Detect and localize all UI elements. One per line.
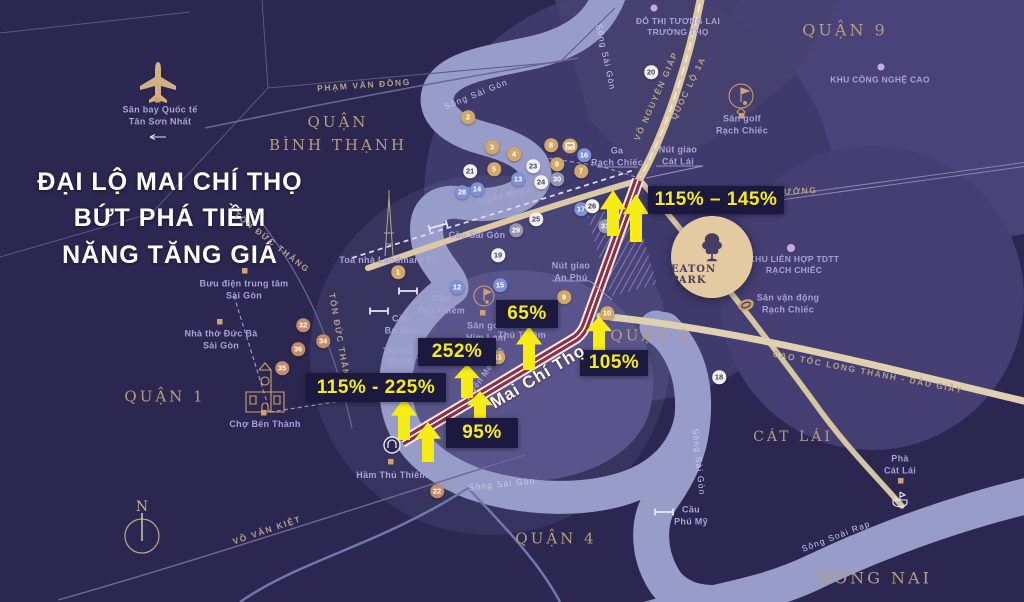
poi-marker: 25 xyxy=(529,212,543,226)
station-icon xyxy=(563,139,578,154)
place-label: Ga Rạch Chiếc xyxy=(591,145,643,168)
place-label: Sân vận động Rạch Chiếc xyxy=(757,292,820,315)
place-label: Cầu Phú Mỹ xyxy=(674,504,708,527)
place-label: Sân bay Quốc tế Tân Sơn Nhất xyxy=(122,104,197,127)
poi-marker: 32 xyxy=(296,318,310,332)
place-label: Hầm Thủ Thiêm xyxy=(356,470,427,482)
poi-marker: 19 xyxy=(491,248,505,262)
eaton-park-name: EATON PARK xyxy=(671,264,753,286)
tunnel-icon xyxy=(384,437,400,453)
poi-marker: 22 xyxy=(430,484,444,498)
page-title: ĐẠI LỘ MAI CHÍ THỌ BỨT PHÁ TIỀM NĂNG TĂN… xyxy=(30,164,310,273)
poi-marker: 3 xyxy=(485,140,499,154)
poi-marker: 8 xyxy=(544,138,558,152)
poi-marker: 5 xyxy=(487,162,501,176)
poi-marker: 13 xyxy=(511,172,525,186)
district-label: QUẬN 2 xyxy=(610,324,691,347)
place-label: KHU LIÊN HỢP TDTT RẠCH CHIẾC xyxy=(749,254,840,276)
district-label: QUẬN 9 xyxy=(802,19,887,44)
poi-marker: 16 xyxy=(577,148,591,162)
poi-marker: 28 xyxy=(455,185,469,199)
place-label: Cầu Thủ Thiêm xyxy=(417,293,465,316)
percent-badge: 95% xyxy=(446,418,518,448)
place-label: Cầu Sài Gòn xyxy=(449,230,506,242)
place-label: Toà nhà Landmark 81 xyxy=(339,255,437,267)
poi-marker: 29 xyxy=(509,223,523,237)
percent-badge: 115% - 225% xyxy=(306,373,446,402)
poi-marker: 23 xyxy=(526,159,540,173)
district-label: QUẬN 1 xyxy=(124,385,205,408)
percent-badge: 105% xyxy=(580,350,648,376)
percent-badge: 115% – 145% xyxy=(648,186,784,214)
district-label: CÁT LÁI xyxy=(753,427,833,449)
poi-marker: 35 xyxy=(275,361,289,375)
poi-marker: 15 xyxy=(493,278,507,292)
district-label: QUẬN 4 xyxy=(515,527,596,550)
poi-marker: 2 xyxy=(461,110,475,124)
place-label: Nút giao Cát Lái xyxy=(659,144,697,167)
place-label: Chợ Bến Thành xyxy=(229,419,300,431)
place-label: Cầu Ba Son xyxy=(385,313,418,336)
place-label: Phà Cát Lái xyxy=(884,453,916,476)
poi-marker: 26 xyxy=(585,199,599,213)
poi-marker: 30 xyxy=(550,172,564,186)
poi-marker: 9 xyxy=(557,290,571,304)
poi-marker: 1 xyxy=(391,265,405,279)
eaton-park-logo: EATON PARK xyxy=(671,216,753,298)
poi-marker: 18 xyxy=(712,370,726,384)
poi-marker: 21 xyxy=(463,164,477,178)
poi-marker: 14 xyxy=(470,182,484,196)
poi-marker: 6 xyxy=(550,157,564,171)
poi-marker: 24 xyxy=(534,175,548,189)
tree-icon xyxy=(695,229,729,263)
poi-marker: 7 xyxy=(574,164,588,178)
place-label: Nút giao An Phú xyxy=(552,260,590,283)
poi-marker: 34 xyxy=(316,334,330,348)
percent-badge: 252% xyxy=(418,338,496,366)
map-canvas: ĐẠI LỘ MAI CHÍ THỌ BỨT PHÁ TIỀM NĂNG TĂN… xyxy=(0,0,1024,602)
place-label: Nhà thờ Đức Bà Sài Gòn xyxy=(184,328,257,351)
place-label: Sân golf Rạch Chiếc xyxy=(716,113,768,136)
poi-marker: 20 xyxy=(644,65,658,79)
percent-badge: 65% xyxy=(496,300,558,328)
poi-marker: 4 xyxy=(507,147,521,161)
poi-marker: 36 xyxy=(291,342,305,356)
district-label: QUẬN BÌNH THẠNH xyxy=(269,111,407,158)
poi-marker: 10 xyxy=(600,306,614,320)
place-label: KHU CÔNG NGHỆ CAO xyxy=(830,74,930,85)
compass-north-label: N xyxy=(136,499,148,515)
poi-marker: 12 xyxy=(450,280,464,294)
place-label: ĐÔ THỊ TƯƠNG LAI TRƯỜNG THỌ xyxy=(636,16,720,38)
district-label: ĐỒNG NAI xyxy=(818,567,932,592)
place-label: Bưu điện trung tâm Sài Gòn xyxy=(200,278,289,301)
